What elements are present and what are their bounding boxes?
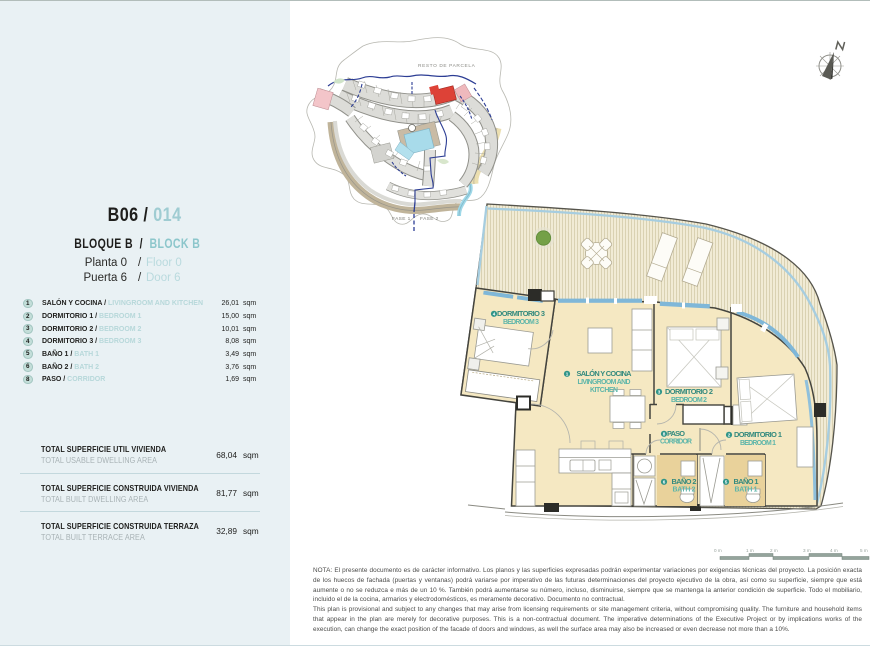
svg-text:BAÑO 1: BAÑO 1: [734, 477, 759, 486]
svg-text:BEDROOM 1: BEDROOM 1: [740, 440, 776, 447]
svg-text:8: 8: [663, 432, 666, 437]
svg-text:CORRIDOR: CORRIDOR: [660, 439, 692, 446]
svg-text:DORMITORIO 2: DORMITORIO 2: [665, 387, 713, 396]
svg-text:1 m: 1 m: [746, 548, 754, 553]
svg-text:4: 4: [493, 312, 496, 317]
svg-text:FASE 2: FASE 2: [420, 216, 439, 222]
svg-text:6: 6: [663, 480, 666, 485]
svg-text:SALÓN Y COCINA: SALÓN Y COCINA: [577, 369, 633, 378]
svg-text:BATH 2: BATH 2: [673, 487, 696, 494]
svg-text:RESTO DE PARCELA: RESTO DE PARCELA: [418, 63, 476, 69]
svg-text:4 m: 4 m: [830, 548, 838, 553]
svg-text:0 m: 0 m: [714, 548, 722, 553]
svg-text:1: 1: [566, 372, 569, 377]
svg-text:2: 2: [728, 433, 731, 438]
svg-text:FASE 1: FASE 1: [392, 216, 411, 222]
svg-text:5: 5: [725, 480, 728, 485]
svg-text:BEDROOM 2: BEDROOM 2: [671, 397, 707, 404]
svg-text:5 m: 5 m: [860, 548, 868, 553]
svg-text:2 m: 2 m: [770, 548, 778, 553]
svg-text:3: 3: [658, 390, 661, 395]
svg-text:3 m: 3 m: [803, 548, 811, 553]
svg-text:DORMITORIO 3: DORMITORIO 3: [497, 309, 545, 318]
svg-text:LIVINGROOM AND: LIVINGROOM AND: [578, 379, 631, 386]
svg-text:BEDROOM 3: BEDROOM 3: [503, 319, 539, 326]
svg-text:BAÑO 2: BAÑO 2: [672, 477, 697, 486]
svg-text:DORMITORIO 1: DORMITORIO 1: [734, 430, 782, 439]
svg-text:KITCHEN: KITCHEN: [590, 387, 618, 394]
svg-text:BATH 1: BATH 1: [735, 487, 758, 494]
svg-text:PASO: PASO: [667, 429, 685, 438]
